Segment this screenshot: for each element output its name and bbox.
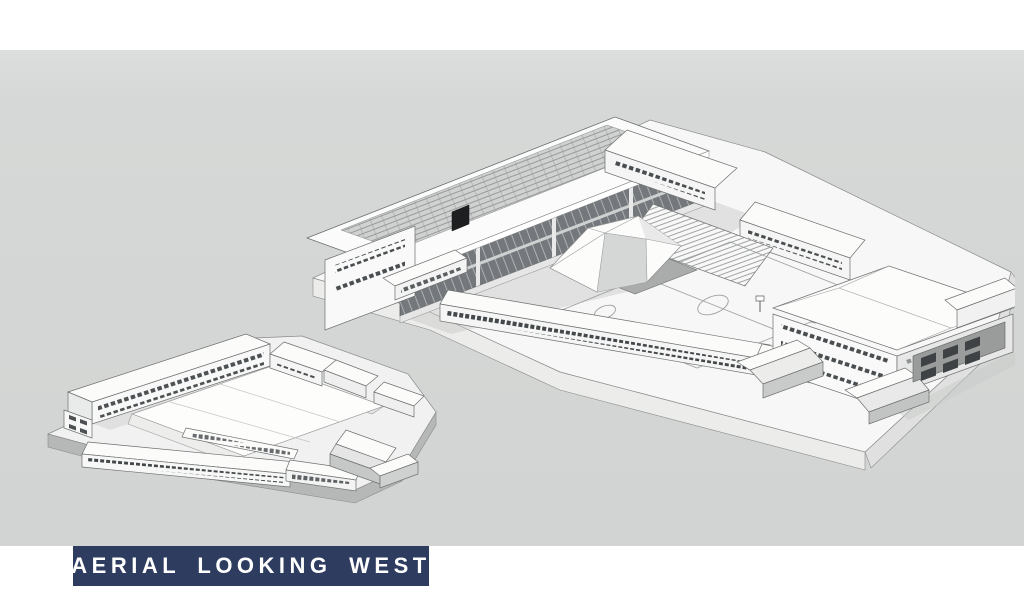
proposed-aerial-drawing	[305, 100, 1015, 485]
slide-title: AERIAL LOOKING WEST	[71, 553, 430, 579]
title-banner: AERIAL LOOKING WEST	[73, 546, 429, 586]
presentation-slide: { "slide": { "canvas_color": "#d6d8d7", …	[0, 0, 1024, 602]
slide-canvas: Existing Proposed	[0, 50, 1024, 546]
top-margin	[0, 0, 1024, 50]
